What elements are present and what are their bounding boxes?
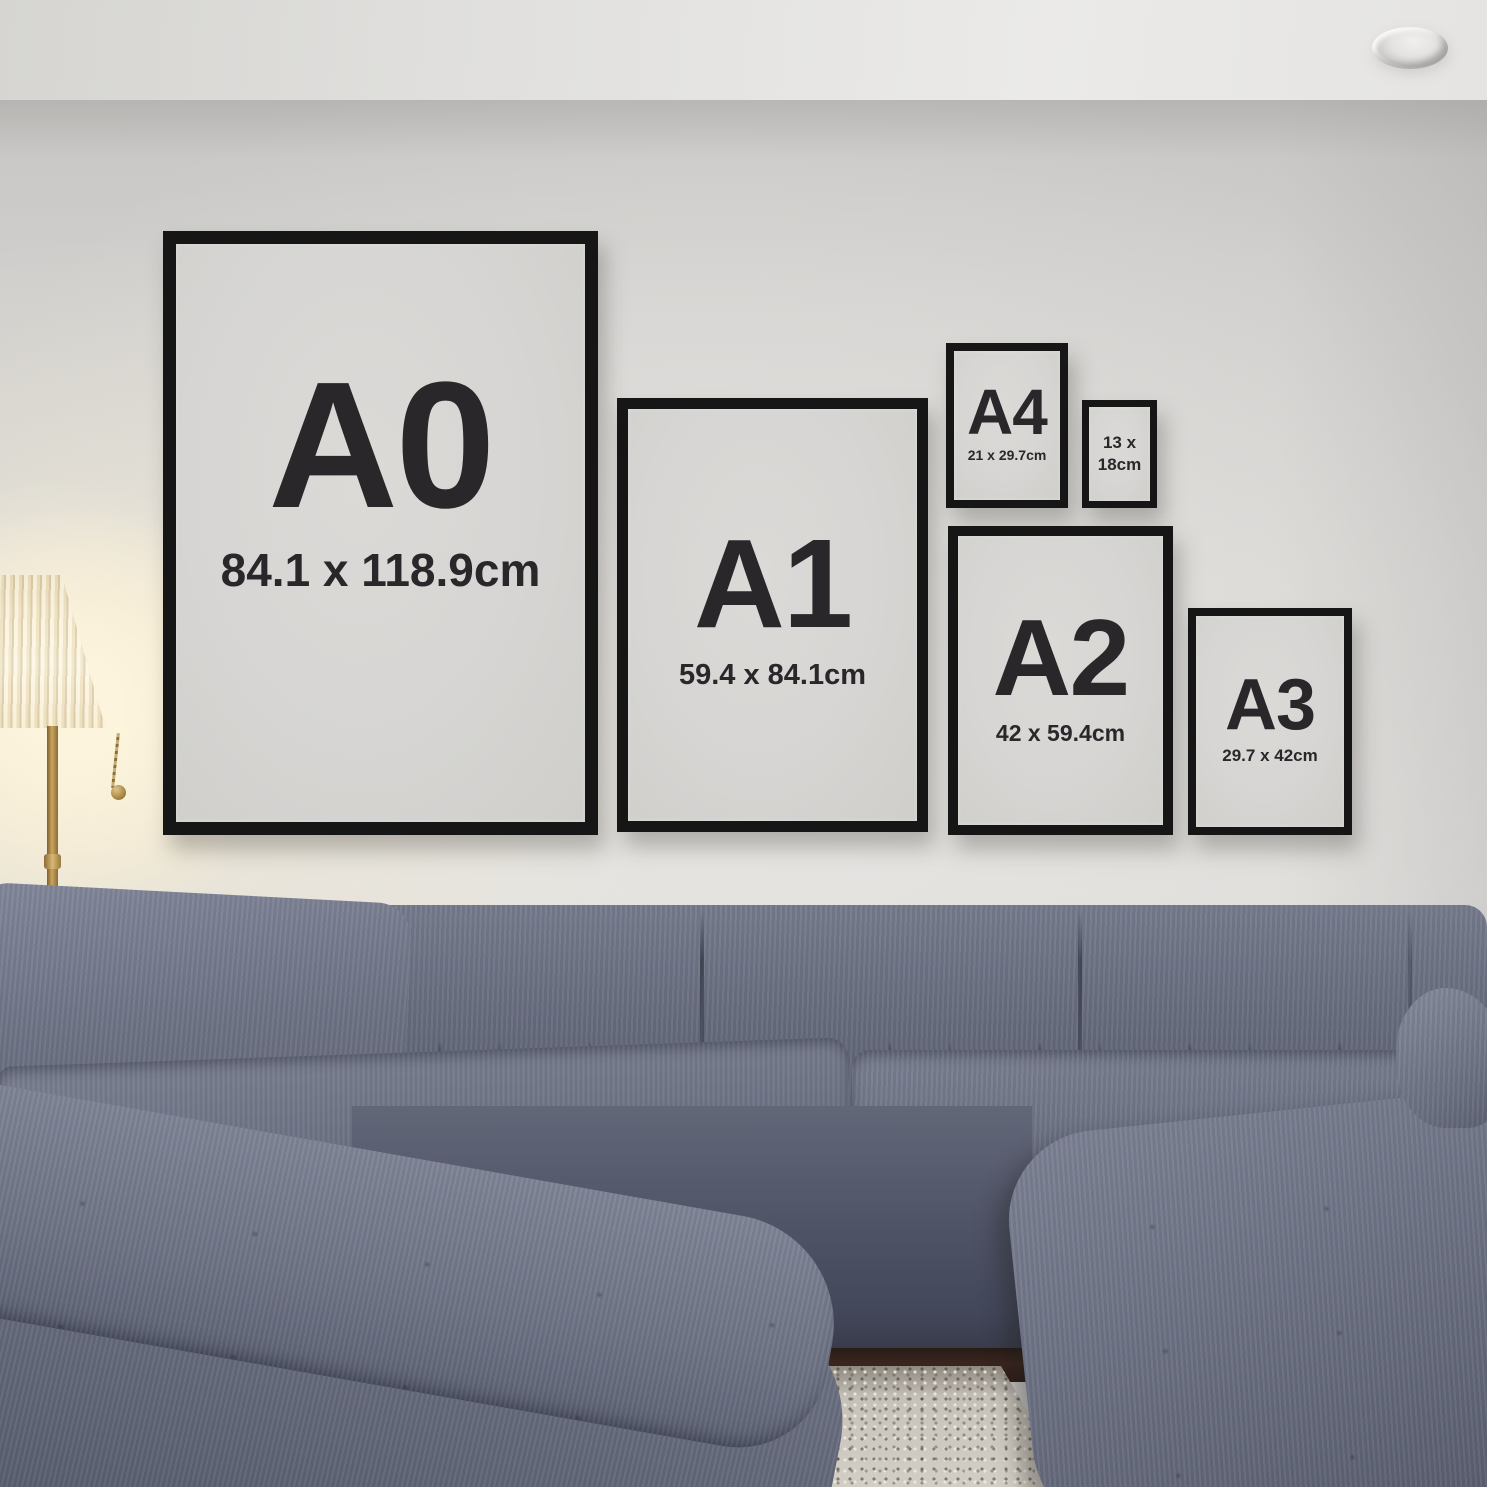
living-room-scene: A0 84.1 x 118.9cm A1 59.4 x 84.1cm A4 21… — [0, 0, 1487, 1487]
sectional-sofa — [0, 0, 1487, 1487]
sofa-right-chaise-cushion — [1000, 1085, 1487, 1487]
sofa-right-arm-cushion — [1396, 988, 1487, 1128]
